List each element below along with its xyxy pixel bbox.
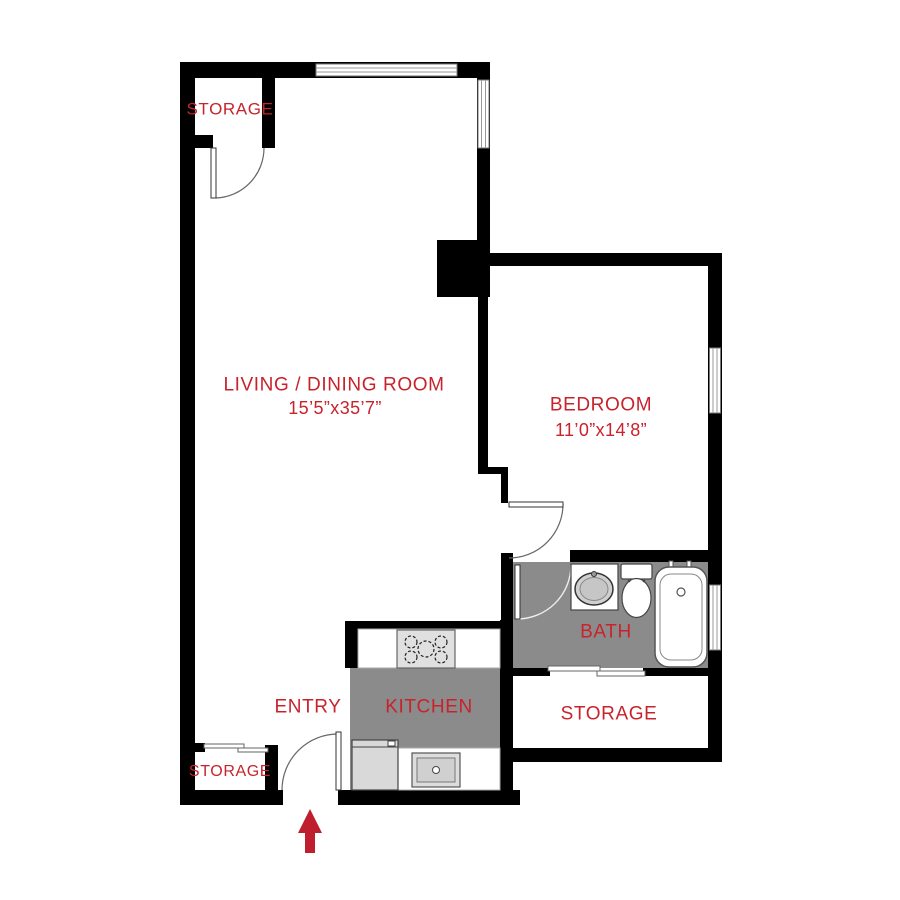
storage-right-label: STORAGE [561,705,658,724]
bedroom-top-wall [490,253,722,266]
bath-left-wall [501,553,513,668]
window-bedroom-right [710,348,721,413]
window-bath-right [710,585,721,650]
living-dining-dimensions: 15’5”x35’7” [288,399,381,417]
toilet [621,564,652,618]
bedroom-left-wall-upper [478,297,488,467]
floor-plan-drawing [0,0,900,900]
bath-top-wall [570,550,708,562]
entry-door [282,732,341,790]
sink-vanity [571,564,618,610]
right-bottom-wall [505,748,722,762]
bottom-wall-right-of-entry [338,790,520,805]
kitchen-sink [412,753,460,787]
window-top [316,64,457,76]
window-living-right [478,80,489,148]
floor-plan: STORAGE LIVING / DINING ROOM 15’5”x35’7”… [0,0,900,900]
kitchen-top-wall [345,621,500,629]
pillar [437,240,490,297]
storage-top-left-label: STORAGE [186,101,273,118]
living-dining-label: LIVING / DINING ROOM [223,376,444,395]
storage-tl-door [211,148,264,198]
bottom-wall-left-of-entry [180,790,283,805]
entry-arrow-icon [298,809,322,853]
entry-label: ENTRY [274,698,341,717]
storage-top-wall-left [505,668,550,676]
storage-bl-sliding-door [204,744,268,752]
left-exterior-wall [180,62,195,805]
bedroom-door [509,502,563,558]
kitchen-label: KITCHEN [385,698,473,717]
storage-top-wall-right [643,668,708,676]
bedroom-dimensions: 11’0”x14’8” [555,421,647,439]
bath-label: BATH [580,623,632,642]
storage-tl-bottom-stub [195,135,213,148]
bedroom-left-wall-lower [501,467,508,503]
storage-bottom-left-label: STORAGE [189,764,271,780]
bedroom-label: BEDROOM [550,396,652,415]
refrigerator [352,740,398,790]
kitchen-corner-block [345,621,358,668]
bathtub [655,561,707,667]
stove [397,630,455,668]
